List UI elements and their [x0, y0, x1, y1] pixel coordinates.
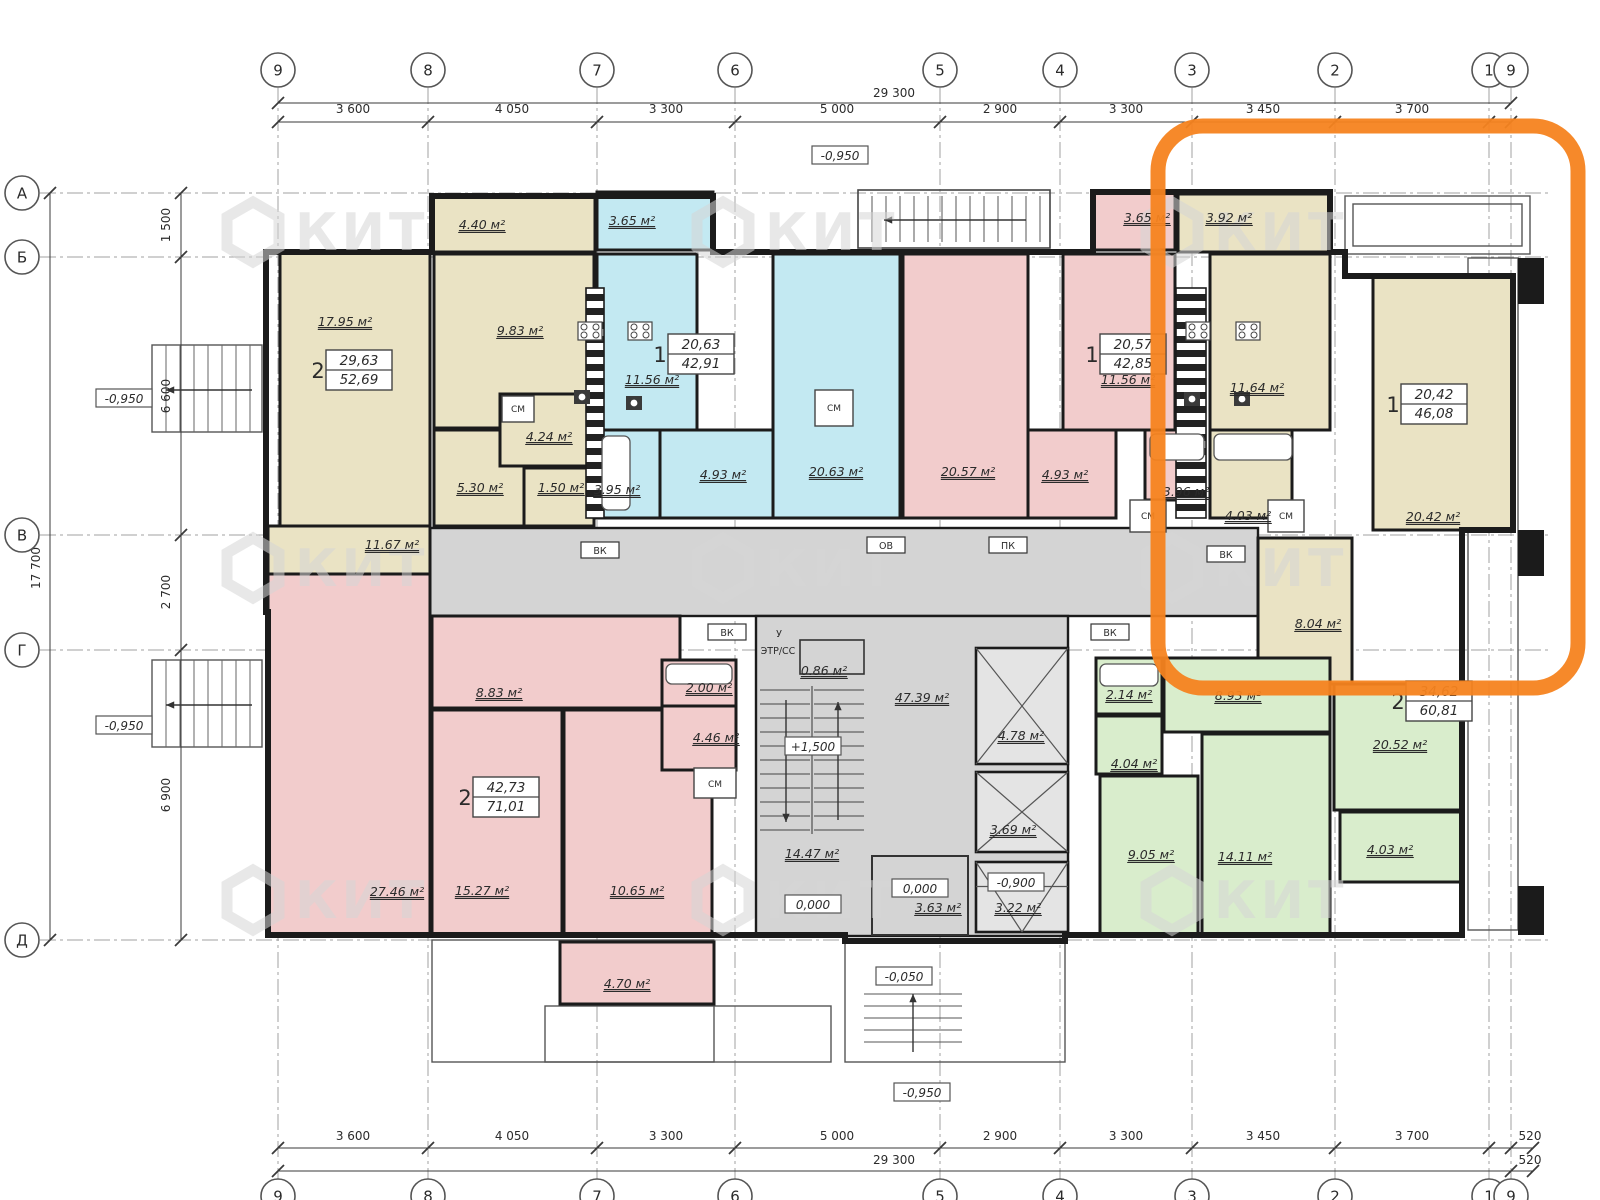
room-area-label: 20.63 м² [809, 464, 863, 479]
dim-segment: 6 900 [159, 778, 173, 812]
watermark-text: КИТ [1214, 871, 1348, 931]
room-area-label: 4.70 м² [604, 976, 650, 991]
apartment-rooms-count: 1 [1386, 393, 1399, 417]
axis-bubble-label: 2 [1330, 62, 1340, 80]
level-label: -0,950 [821, 149, 860, 163]
axis-bubble-label: 3 [1187, 62, 1197, 80]
room-area-label: 14.11 м² [1218, 849, 1272, 864]
apartment-total-area: 71,01 [487, 799, 526, 815]
axis-bubble-label: 8 [423, 62, 433, 80]
room-area-label: 4.40 м² [459, 217, 505, 232]
apartment-rooms-count: 1 [653, 343, 666, 367]
room-area-label: 14.47 м² [785, 846, 839, 861]
tech-label: ЭТР/СС [761, 646, 796, 657]
axis-bubble-label: 7 [592, 1188, 602, 1200]
room-area-label: 2.00 м² [686, 680, 732, 695]
room-area-label: 3.22 м² [995, 900, 1041, 915]
room-area-label: 4.04 м² [1111, 756, 1157, 771]
axis-bubble-label: 9 [273, 62, 283, 80]
axis-bubble-label: 3 [1187, 1188, 1197, 1200]
apartment-total-area: 60,81 [1420, 703, 1459, 719]
level-label: -0,950 [903, 1086, 942, 1100]
dim-segment: 3 450 [1246, 1129, 1280, 1143]
axis-bubble-label: 2 [1330, 1188, 1340, 1200]
dim-total-top: 29 300 [873, 86, 915, 100]
level-label: +1,500 [791, 740, 836, 754]
closet-label: СМ [827, 404, 841, 414]
floor-plan: КИТКИТКИТКИТКИТКИТКИТКИТКИТСМСМСМСМСМ4.4… [0, 0, 1600, 1200]
dim-segment: 2 700 [159, 575, 173, 609]
room-kitchen [1210, 254, 1330, 430]
level-label: 0,000 [796, 898, 831, 912]
level-label: -0,050 [885, 970, 924, 984]
dim-total-bottom: 29 300 [873, 1153, 915, 1167]
axis-bubble-label: А [17, 185, 28, 203]
apartment-living-area: 20,42 [1415, 387, 1454, 403]
apartment-total-area: 42,91 [682, 356, 721, 372]
room-area-label: 2.14 м² [1106, 687, 1152, 702]
apartment-living-area: 29,63 [340, 353, 379, 369]
room-balcony [560, 942, 714, 1004]
axis-bubble-label: Д [16, 932, 28, 950]
room-area-label: 20.42 м² [1406, 509, 1460, 524]
room-area-label: 9.05 м² [1128, 847, 1174, 862]
tech-label: ВК [1219, 550, 1233, 561]
room-area-label: 3.95 м² [594, 482, 640, 497]
axis-bubble-label: 6 [730, 62, 740, 80]
room-area-label: 4.24 м² [526, 429, 572, 444]
dim-segment: 6 600 [159, 379, 173, 413]
room-wc [524, 468, 594, 526]
dim-segment: 3 300 [649, 1129, 683, 1143]
room-area-label: 3.69 м² [990, 822, 1036, 837]
room-area-label: 4.93 м² [700, 467, 746, 482]
axis-bubble-label: 9 [273, 1188, 283, 1200]
dim-segment: 3 300 [1109, 102, 1143, 116]
tech-label: ВК [593, 546, 607, 557]
room-area-label: 10.65 м² [610, 883, 664, 898]
room-area-label: 4.78 м² [998, 728, 1044, 743]
room-area-label: 5.30 м² [457, 480, 503, 495]
bathtub-icon [602, 436, 630, 510]
room-area-label: 3.96 м² [1163, 484, 1209, 499]
room-area-label: 3.92 м² [1206, 210, 1252, 225]
apartment-rooms-count: 2 [311, 359, 324, 383]
room-area-label: 11.67 м² [365, 537, 419, 552]
apartment-total-area: 42,85 [1114, 356, 1153, 372]
axis-bubble-label: Г [17, 642, 26, 660]
axis-bubble-label: 5 [935, 62, 945, 80]
apartment-total-area: 52,69 [340, 372, 379, 388]
room-hall [432, 616, 680, 708]
apartment-living-area: 20,57 [1114, 337, 1153, 353]
dim-segment: 3 450 [1246, 102, 1280, 116]
room-area-label: 15.27 м² [455, 883, 509, 898]
dim-segment: 5 000 [820, 102, 854, 116]
apartment-living-area: 42,73 [487, 780, 526, 796]
axis-bubble-label: 1 [1484, 62, 1494, 80]
dim-segment: 5 000 [820, 1129, 854, 1143]
tech-label: ПК [1001, 541, 1015, 552]
room-area-label: 3.65 м² [609, 213, 655, 228]
dim-segment: 3 600 [336, 1129, 370, 1143]
axis-bubble-label: 9 [1506, 62, 1516, 80]
closet-label: СМ [511, 405, 525, 415]
tech-label: ВК [720, 628, 734, 639]
dim-segment: 520 [1519, 1129, 1542, 1143]
floor-plan-drawing: КИТКИТКИТКИТКИТКИТКИТКИТКИТСМСМСМСМСМ4.4… [0, 0, 1600, 1200]
apartment-total-area: 46,08 [1415, 406, 1454, 422]
level-label: 0,000 [903, 882, 938, 896]
bathtub-icon [1100, 664, 1158, 686]
dim-segment: 3 300 [1109, 1129, 1143, 1143]
dim-segment: 3 700 [1395, 1129, 1429, 1143]
room-area-label: 3.63 м² [915, 900, 961, 915]
closet-label: СМ [1279, 512, 1293, 522]
closet-label: СМ [708, 780, 722, 790]
axis-bubble-label: 4 [1055, 62, 1065, 80]
dim-segment: 2 900 [983, 102, 1017, 116]
room-area-label: 27.46 м² [370, 884, 424, 899]
room-area-label: 4.46 м² [693, 730, 739, 745]
level-label: -0,900 [997, 876, 1036, 890]
room-area-label: 20.57 м² [941, 464, 995, 479]
dim-segment: 2 900 [983, 1129, 1017, 1143]
room-area-label: 8.83 м² [476, 685, 522, 700]
apartment-rooms-count: 2 [458, 786, 471, 810]
axis-bubble-label: 5 [935, 1188, 945, 1200]
dim-segment: 1 500 [159, 208, 173, 242]
axis-bubble-label: В [17, 527, 27, 545]
room-area-label: 17.95 м² [318, 314, 372, 329]
dim-segment: 4 050 [495, 102, 529, 116]
axis-bubble-label: 7 [592, 62, 602, 80]
axis-bubble-label: Б [17, 249, 27, 267]
room-area-label: 1.50 м² [538, 480, 584, 495]
axis-bubble-label: 4 [1055, 1188, 1065, 1200]
dim-segment: 3 300 [649, 102, 683, 116]
room-area-label: 4.93 м² [1042, 467, 1088, 482]
bathtub-icon [1214, 434, 1292, 460]
apartment-living-area: 20,63 [682, 337, 721, 353]
axis-bubble-label: 6 [730, 1188, 740, 1200]
tech-label: ОВ [879, 541, 893, 552]
watermark-text: КИТ [295, 203, 429, 263]
room-area-label: 47.39 м² [895, 690, 949, 705]
axis-bubble-label: 8 [423, 1188, 433, 1200]
room-living [432, 710, 562, 936]
level-label: -0,950 [105, 719, 144, 733]
room-area-label: 4.03 м² [1367, 842, 1413, 857]
room-area-label: 4.03 м² [1225, 508, 1271, 523]
room-area-label: 11.64 м² [1230, 380, 1284, 395]
watermark-text: КИТ [765, 203, 899, 263]
dim-segment: 3 700 [1395, 102, 1429, 116]
axis-bubble-label: 9 [1506, 1188, 1516, 1200]
axis-bubble-label: 1 [1484, 1188, 1494, 1200]
room-balcony [432, 196, 595, 252]
apartment-rooms-count: 1 [1085, 343, 1098, 367]
tech-label: ВК [1103, 628, 1117, 639]
room-area-label: 9.83 м² [497, 323, 543, 338]
tech-label: У [776, 629, 782, 640]
room-area-label: 0.86 м² [801, 663, 847, 678]
dim-total-left: 17 700 [29, 547, 43, 589]
level-label: -0,950 [105, 392, 144, 406]
room-area-label: 20.52 м² [1373, 737, 1427, 752]
dim-segment: 520 [1519, 1153, 1542, 1167]
room-area-label: 8.04 м² [1295, 616, 1341, 631]
watermark-text: КИТ [295, 871, 429, 931]
dim-segment: 3 600 [336, 102, 370, 116]
dim-segment: 4 050 [495, 1129, 529, 1143]
